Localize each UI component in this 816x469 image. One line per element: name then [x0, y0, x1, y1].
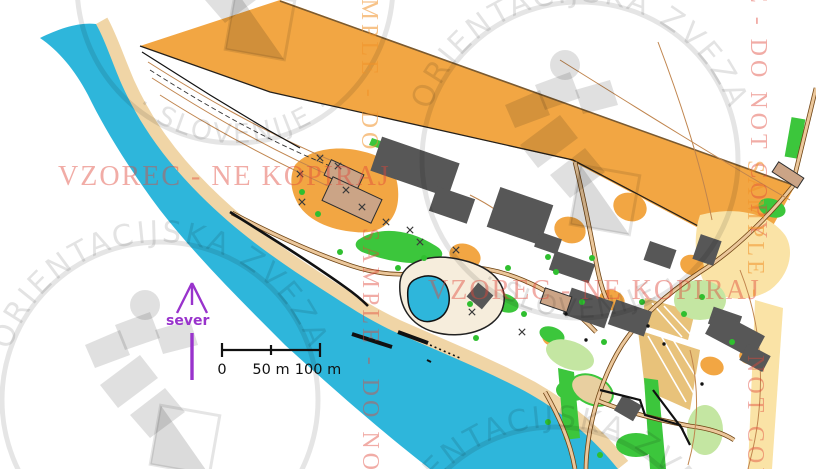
map-screenshot: ORIENTACIJSKA ZVEZA · SLOVENIJE · [0, 0, 816, 469]
scale-label-100: 100 m [295, 362, 341, 378]
warning-text-en-vertical-1: SAMPLE - DO NOT COPY [357, 228, 383, 469]
map-canvas: ORIENTACIJSKA ZVEZA · SLOVENIJE · [0, 0, 816, 469]
scale-label-50: 50 m [252, 362, 289, 378]
warning-text-en-vertical-1b: SAMPLE - DO [356, 0, 382, 153]
building [644, 241, 677, 269]
warning-text-en-vertical-2c: NOT COPY [742, 355, 768, 469]
building [429, 186, 475, 224]
warning-text-si-2: VZOREC - NE KOPIRAJ [428, 275, 761, 306]
warning-text-si-1: VZOREC - NE KOPIRAJ [58, 161, 391, 192]
north-label: sever [166, 313, 209, 329]
scale-label-0: 0 [217, 362, 226, 378]
warning-text-en-vertical-2b: SAMPLE - [742, 160, 768, 301]
